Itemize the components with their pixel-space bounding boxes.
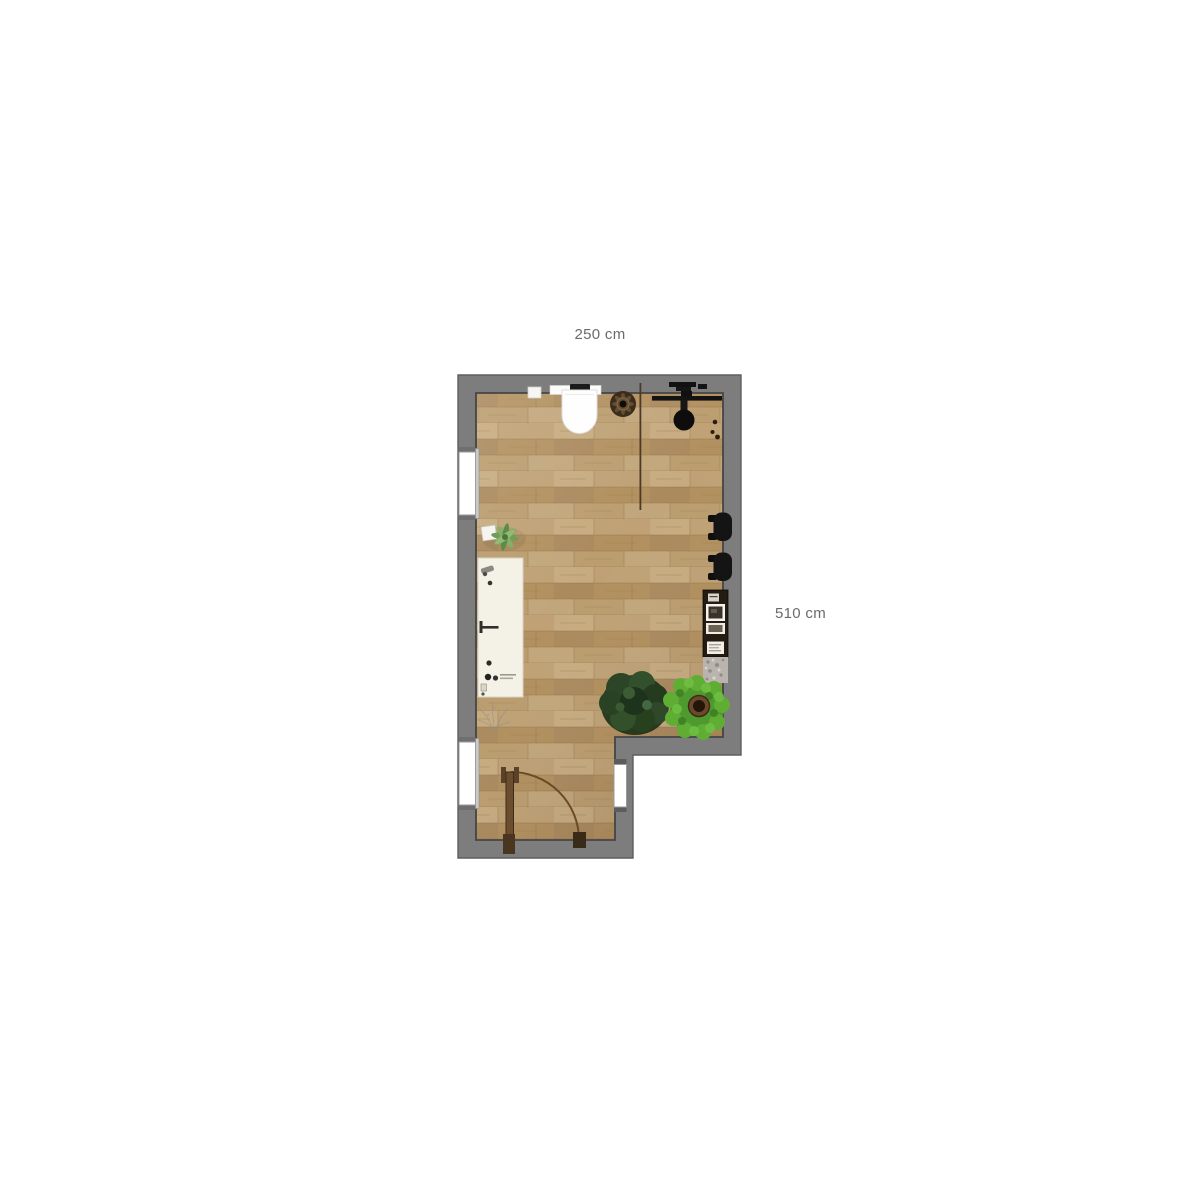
- wall-box-icon: [528, 387, 541, 398]
- floor-plan-drawing: [0, 0, 1200, 1200]
- room-divider-line: [640, 383, 642, 510]
- ceiling-fan-icon: [610, 391, 636, 417]
- window-upper-left-icon: [459, 447, 480, 520]
- stone-mat-icon: [703, 657, 728, 683]
- door-leaf: [506, 772, 514, 843]
- window-lower-left-icon: [459, 737, 480, 810]
- vanity-counter-icon: [478, 558, 523, 697]
- window-lower-right-wall-icon: [614, 759, 627, 812]
- floor-plan-canvas: 250 cm 510 cm: [0, 0, 1200, 1200]
- display-shelf-icon: [703, 590, 728, 657]
